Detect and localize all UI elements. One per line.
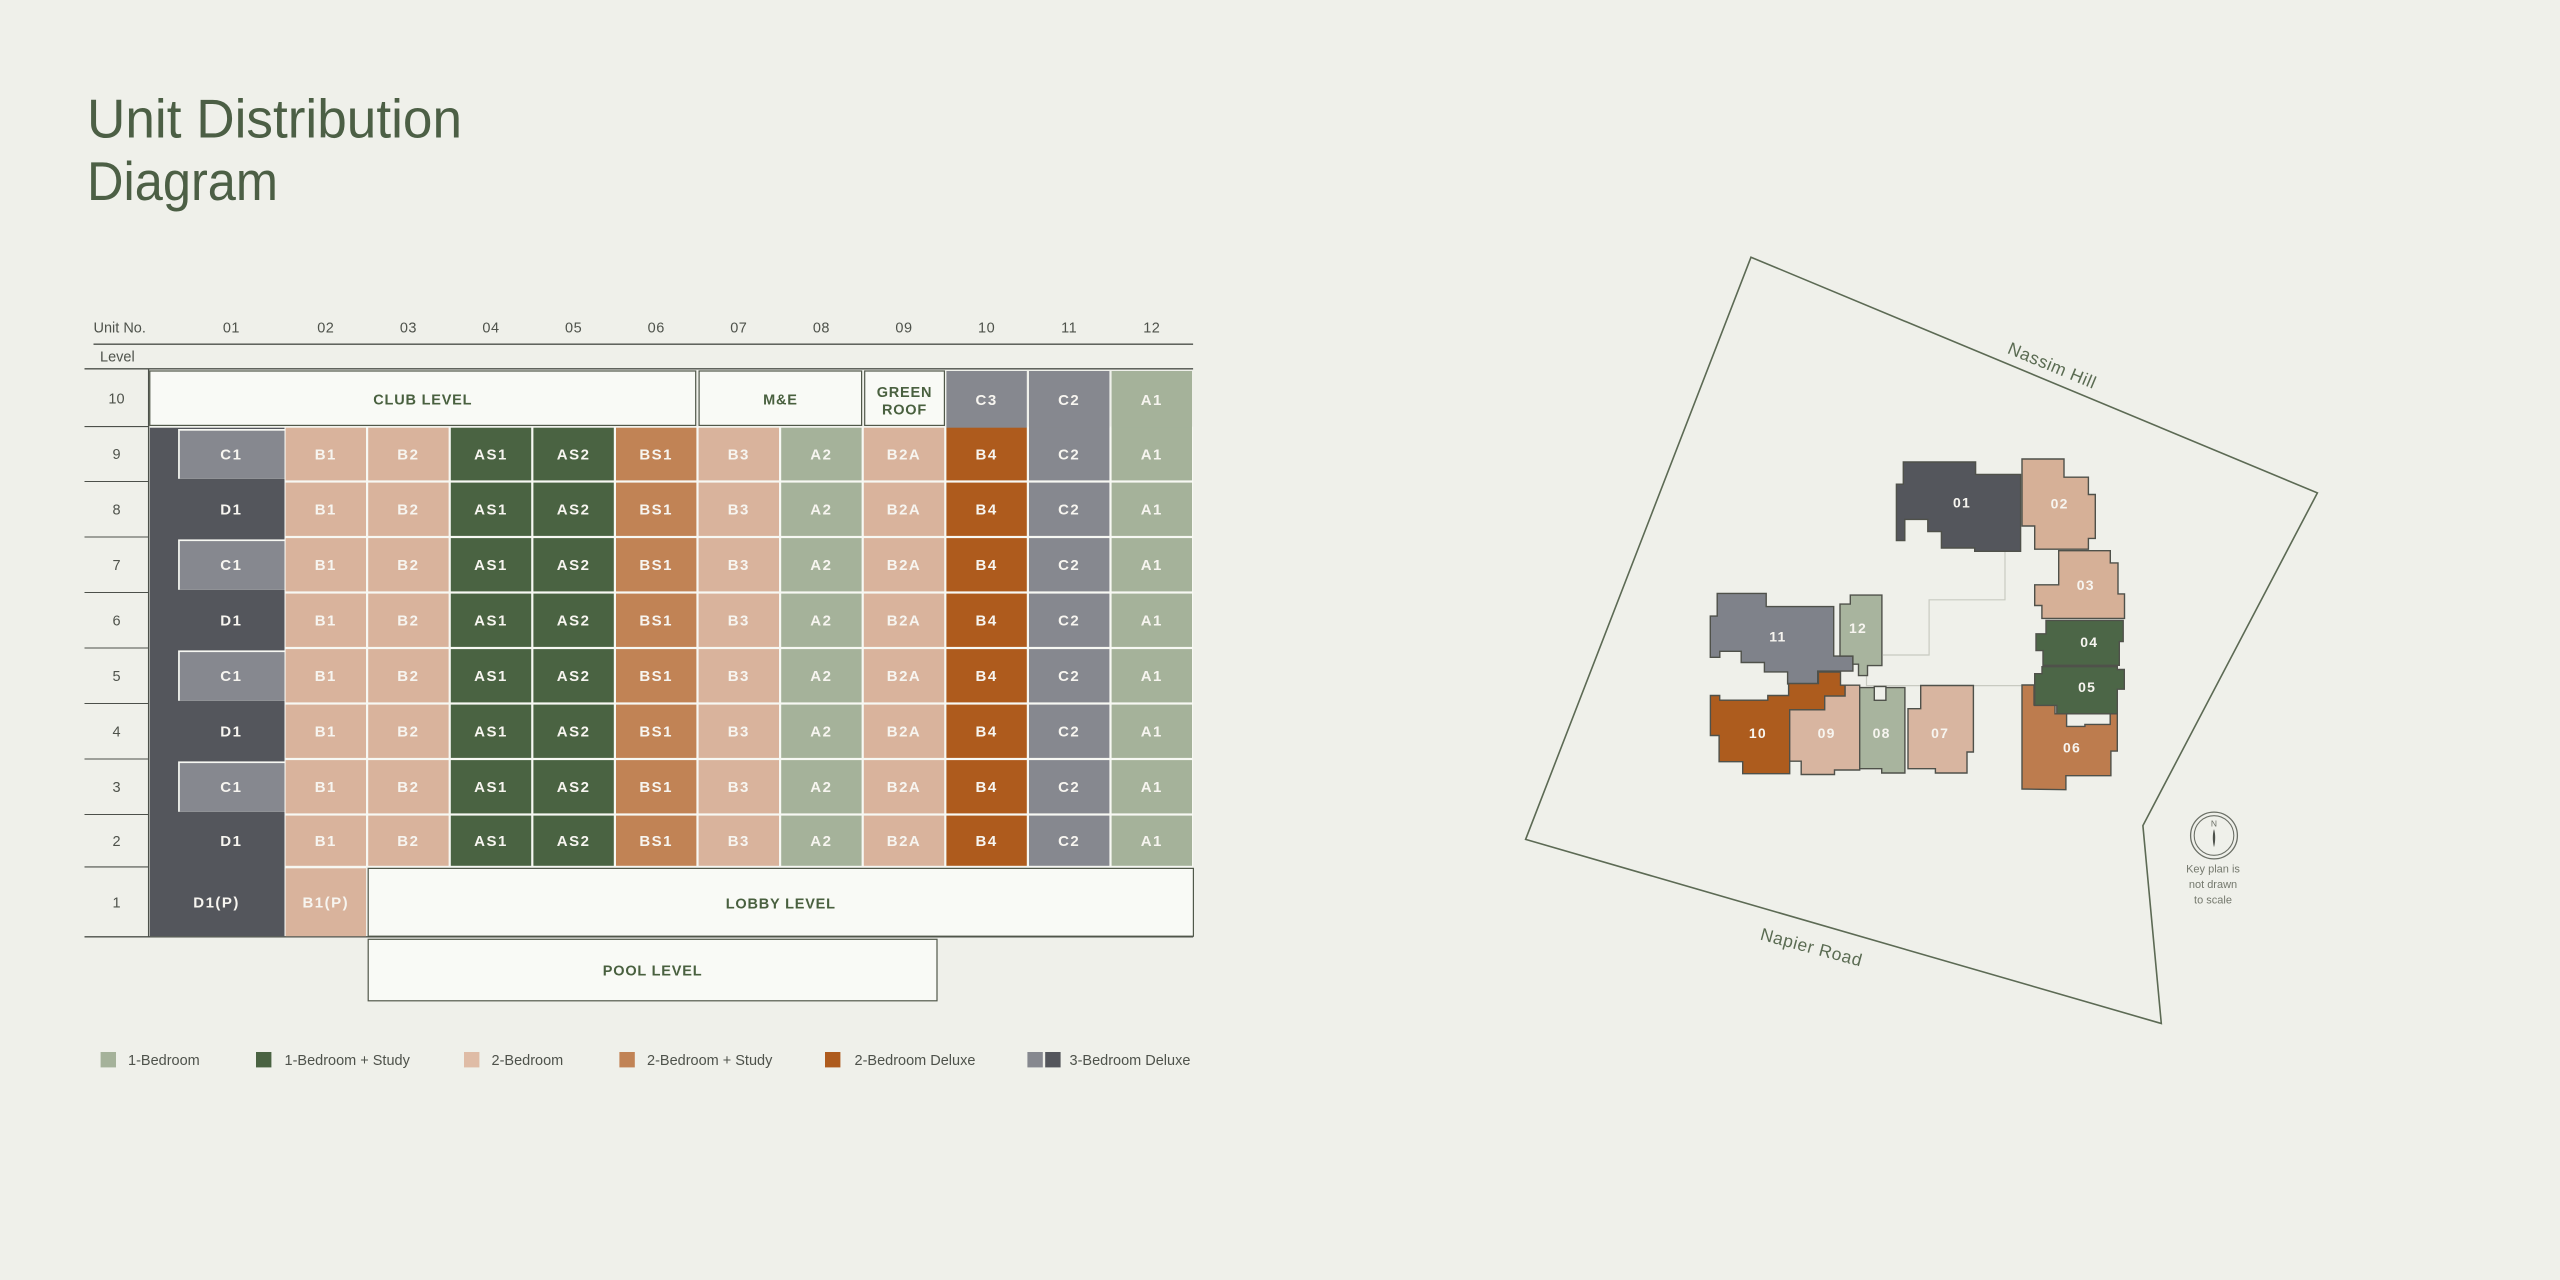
svg-text:2: 2 [112,834,120,850]
svg-text:A2: A2 [810,502,832,519]
svg-text:B2: B2 [397,779,419,796]
svg-text:A1: A1 [1141,502,1163,519]
svg-text:C2: C2 [1058,446,1080,463]
svg-text:6: 6 [112,613,120,629]
svg-text:7: 7 [112,558,120,574]
svg-text:LOBBY LEVEL: LOBBY LEVEL [726,897,836,913]
svg-text:03: 03 [2077,577,2095,593]
svg-text:C2: C2 [1058,724,1080,741]
svg-text:C1: C1 [220,557,242,574]
svg-text:B4: B4 [976,557,998,574]
svg-text:1: 1 [112,895,120,911]
svg-text:AS1: AS1 [474,668,508,685]
svg-text:B1: B1 [315,668,337,685]
svg-text:8: 8 [112,502,120,518]
svg-text:05: 05 [565,321,582,337]
svg-text:9: 9 [112,447,120,463]
svg-text:B3: B3 [728,502,750,519]
svg-text:CLUB LEVEL: CLUB LEVEL [373,393,472,409]
svg-text:BS1: BS1 [639,833,673,850]
svg-text:11: 11 [1769,629,1786,645]
svg-text:D1: D1 [220,613,242,630]
svg-text:B2: B2 [397,446,419,463]
svg-text:B1: B1 [315,446,337,463]
svg-text:B1: B1 [315,724,337,741]
svg-text:B1: B1 [315,613,337,630]
svg-text:B1: B1 [315,779,337,796]
svg-text:M&E: M&E [763,393,798,409]
svg-text:AS1: AS1 [474,724,508,741]
svg-text:10: 10 [1749,725,1767,741]
svg-text:AS1: AS1 [474,779,508,796]
svg-text:A2: A2 [810,779,832,796]
svg-text:AS1: AS1 [474,502,508,519]
svg-text:A1: A1 [1141,446,1163,463]
svg-text:1-Bedroom + Study: 1-Bedroom + Study [285,1053,411,1069]
svg-text:01: 01 [1953,495,1971,511]
svg-text:08: 08 [1873,725,1891,741]
svg-text:C2: C2 [1058,668,1080,685]
svg-text:B2: B2 [397,557,419,574]
svg-text:B4: B4 [976,668,998,685]
svg-text:B3: B3 [728,724,750,741]
svg-text:GREEN: GREEN [877,385,933,401]
svg-text:12: 12 [1143,321,1160,337]
svg-text:C1: C1 [220,446,242,463]
svg-text:D1(P): D1(P) [193,895,240,912]
svg-text:B1: B1 [315,557,337,574]
svg-text:A1: A1 [1141,557,1163,574]
svg-text:B4: B4 [976,446,998,463]
svg-text:AS1: AS1 [474,557,508,574]
svg-text:B1(P): B1(P) [302,895,349,912]
svg-text:BS1: BS1 [639,724,673,741]
svg-text:B3: B3 [728,557,750,574]
svg-text:03: 03 [400,321,417,337]
svg-text:B2A: B2A [887,668,922,685]
svg-text:B3: B3 [728,668,750,685]
svg-text:A2: A2 [810,557,832,574]
svg-text:B2A: B2A [887,833,922,850]
svg-text:10: 10 [978,321,995,337]
svg-text:B2A: B2A [887,557,922,574]
svg-text:B2A: B2A [887,502,922,519]
svg-text:A1: A1 [1141,724,1163,741]
svg-text:A1: A1 [1141,613,1163,630]
svg-text:B2: B2 [397,502,419,519]
svg-text:04: 04 [2080,634,2098,650]
svg-text:01: 01 [223,321,240,337]
svg-text:B2A: B2A [887,613,922,630]
svg-text:A2: A2 [810,668,832,685]
svg-text:B2: B2 [397,613,419,630]
svg-text:A2: A2 [810,724,832,741]
svg-text:AS2: AS2 [557,502,591,519]
svg-text:D1: D1 [220,833,242,850]
svg-text:B4: B4 [976,613,998,630]
svg-text:06: 06 [2063,739,2081,755]
svg-text:C2: C2 [1058,502,1080,519]
svg-text:D1: D1 [220,724,242,741]
svg-text:2-Bedroom + Study: 2-Bedroom + Study [647,1053,773,1069]
svg-text:B3: B3 [728,833,750,850]
svg-text:A1: A1 [1141,668,1163,685]
svg-text:N: N [2211,819,2217,829]
svg-text:AS2: AS2 [557,446,591,463]
svg-text:C2: C2 [1058,392,1080,409]
svg-text:C1: C1 [220,779,242,796]
svg-text:09: 09 [895,321,912,337]
svg-text:10: 10 [108,391,124,407]
svg-text:05: 05 [2078,679,2096,695]
svg-text:B2: B2 [397,668,419,685]
svg-text:Level: Level [100,350,135,366]
svg-text:C2: C2 [1058,833,1080,850]
svg-text:B4: B4 [976,724,998,741]
svg-text:BS1: BS1 [639,613,673,630]
svg-text:ROOF: ROOF [882,403,927,419]
svg-text:1-Bedroom: 1-Bedroom [128,1053,200,1069]
svg-text:Unit Distribution: Unit Distribution [87,88,462,150]
svg-text:B3: B3 [728,779,750,796]
svg-text:11: 11 [1061,321,1077,337]
svg-text:5: 5 [112,669,120,685]
svg-text:B2: B2 [397,833,419,850]
svg-text:not drawn: not drawn [2189,879,2237,891]
svg-text:D1: D1 [220,502,242,519]
svg-text:to scale: to scale [2194,895,2232,907]
svg-text:BS1: BS1 [639,557,673,574]
svg-text:B4: B4 [976,779,998,796]
svg-text:A1: A1 [1141,833,1163,850]
svg-text:AS2: AS2 [557,779,591,796]
svg-text:12: 12 [1849,620,1867,636]
svg-text:BS1: BS1 [639,446,673,463]
svg-text:B2A: B2A [887,724,922,741]
svg-text:08: 08 [813,321,830,337]
svg-text:AS2: AS2 [557,557,591,574]
svg-text:4: 4 [112,724,120,740]
svg-text:B1: B1 [315,502,337,519]
svg-text:BS1: BS1 [639,502,673,519]
svg-text:C2: C2 [1058,613,1080,630]
svg-text:Diagram: Diagram [87,150,278,212]
svg-text:A2: A2 [810,833,832,850]
svg-text:C1: C1 [220,668,242,685]
svg-text:AS1: AS1 [474,446,508,463]
svg-text:BS1: BS1 [639,779,673,796]
svg-text:A2: A2 [810,613,832,630]
svg-text:POOL LEVEL: POOL LEVEL [603,964,703,980]
svg-text:04: 04 [482,321,499,337]
svg-text:B2: B2 [397,724,419,741]
svg-text:AS2: AS2 [557,668,591,685]
svg-text:A2: A2 [810,446,832,463]
svg-text:BS1: BS1 [639,668,673,685]
svg-text:C2: C2 [1058,557,1080,574]
svg-text:B2A: B2A [887,779,922,796]
svg-text:3: 3 [112,780,120,796]
svg-text:C2: C2 [1058,779,1080,796]
svg-text:AS1: AS1 [474,833,508,850]
svg-text:AS2: AS2 [557,724,591,741]
svg-text:07: 07 [730,321,747,337]
svg-text:Key plan is: Key plan is [2186,864,2240,876]
svg-text:06: 06 [648,321,665,337]
svg-text:B2A: B2A [887,446,922,463]
svg-text:B4: B4 [976,502,998,519]
svg-text:2-Bedroom Deluxe: 2-Bedroom Deluxe [855,1053,976,1069]
svg-text:A1: A1 [1141,779,1163,796]
svg-text:B3: B3 [728,613,750,630]
svg-text:A1: A1 [1141,392,1163,409]
svg-text:AS1: AS1 [474,613,508,630]
svg-text:3-Bedroom Deluxe: 3-Bedroom Deluxe [1070,1053,1191,1069]
svg-text:02: 02 [317,321,334,337]
svg-text:B4: B4 [976,833,998,850]
svg-text:Unit No.: Unit No. [94,321,146,337]
svg-text:B1: B1 [315,833,337,850]
svg-text:09: 09 [1818,725,1836,741]
svg-text:C3: C3 [976,392,998,409]
svg-text:2-Bedroom: 2-Bedroom [492,1053,564,1069]
svg-text:07: 07 [1931,725,1949,741]
svg-text:02: 02 [2051,495,2069,511]
svg-text:B3: B3 [728,446,750,463]
svg-text:AS2: AS2 [557,613,591,630]
svg-text:AS2: AS2 [557,833,591,850]
